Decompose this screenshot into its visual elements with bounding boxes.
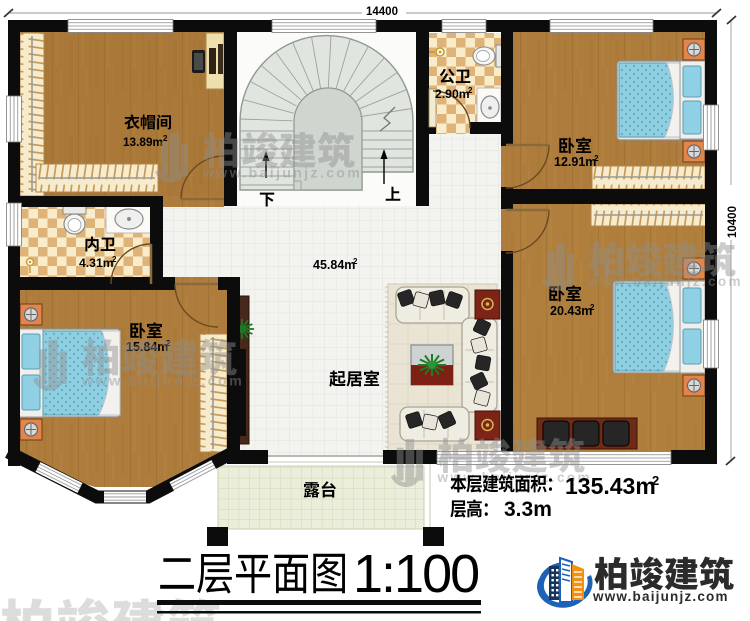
svg-text:www.baijunjz.com: www.baijunjz.com <box>592 589 729 604</box>
svg-text:135.43m: 135.43m <box>565 473 656 499</box>
svg-text:1:100: 1:100 <box>353 544 478 604</box>
svg-text:www.baijunjz.com: www.baijunjz.com <box>81 373 244 389</box>
svg-text:2: 2 <box>163 134 168 143</box>
svg-text:10400: 10400 <box>727 206 739 238</box>
svg-text:2: 2 <box>594 154 599 163</box>
svg-text:2: 2 <box>590 303 595 312</box>
svg-text:www.baijunjz.com: www.baijunjz.com <box>588 274 743 289</box>
svg-text:4.31m: 4.31m <box>79 256 114 270</box>
svg-text:2: 2 <box>353 257 358 266</box>
svg-text:20.43m: 20.43m <box>550 304 592 318</box>
svg-text:13.89m: 13.89m <box>123 135 163 149</box>
svg-text:45.84m: 45.84m <box>313 258 355 272</box>
svg-text:www.baijunjz.com: www.baijunjz.com <box>202 165 362 181</box>
svg-text:3.3m: 3.3m <box>504 498 552 521</box>
svg-text:2: 2 <box>468 86 473 95</box>
svg-text:2.90m: 2.90m <box>435 87 470 101</box>
svg-text:2: 2 <box>652 473 659 488</box>
svg-text:2: 2 <box>112 255 117 264</box>
svg-text:12.91m: 12.91m <box>554 155 596 169</box>
svg-text:14400: 14400 <box>366 6 398 18</box>
